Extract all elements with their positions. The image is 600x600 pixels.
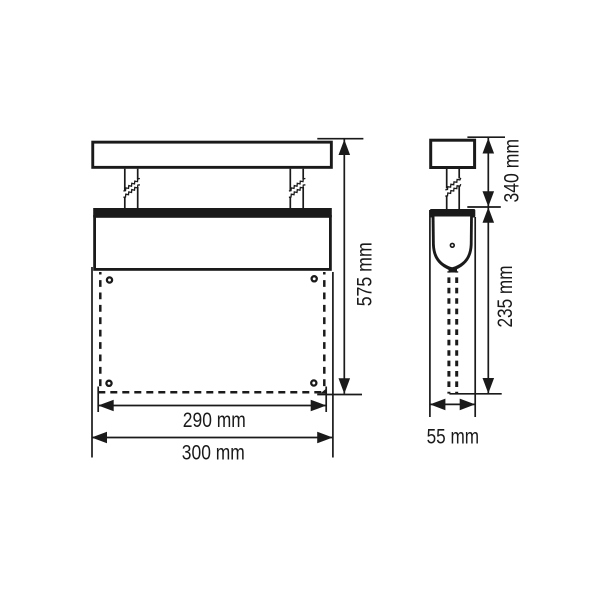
svg-text:290 mm: 290 mm [183, 409, 246, 432]
svg-text:235 mm: 235 mm [494, 266, 517, 328]
svg-text:300 mm: 300 mm [182, 442, 245, 465]
svg-text:55 mm: 55 mm [427, 426, 480, 449]
svg-text:340 mm: 340 mm [501, 139, 524, 203]
svg-text:575 mm: 575 mm [353, 242, 376, 306]
